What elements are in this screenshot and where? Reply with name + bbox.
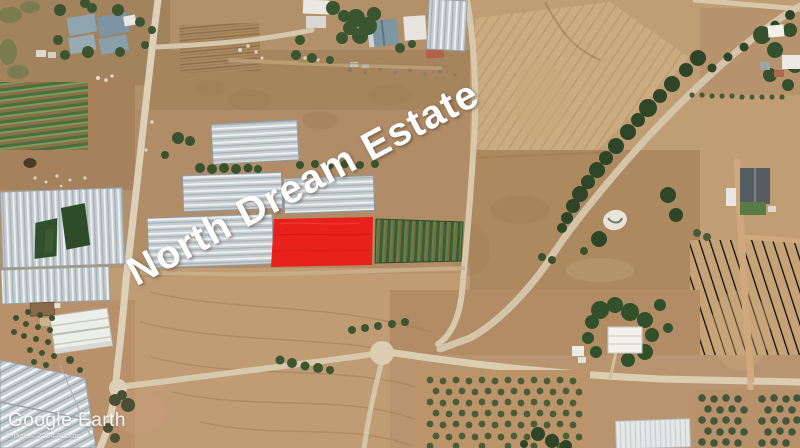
satellite-imagery [0,0,800,448]
google-earth-watermark: Google Earth [8,410,126,432]
lawn [740,202,766,215]
crop-rows-field-northwest [0,82,88,150]
row-field-north [179,23,261,74]
green-crop-rows [375,219,463,263]
ridged-building [616,419,691,448]
imagery-attribution: Image © 2024 Airbus [7,433,78,440]
satellite-map-canvas[interactable]: North Dream Estate Google Earth Image © … [0,0,800,448]
greenhouse-north [427,0,468,51]
